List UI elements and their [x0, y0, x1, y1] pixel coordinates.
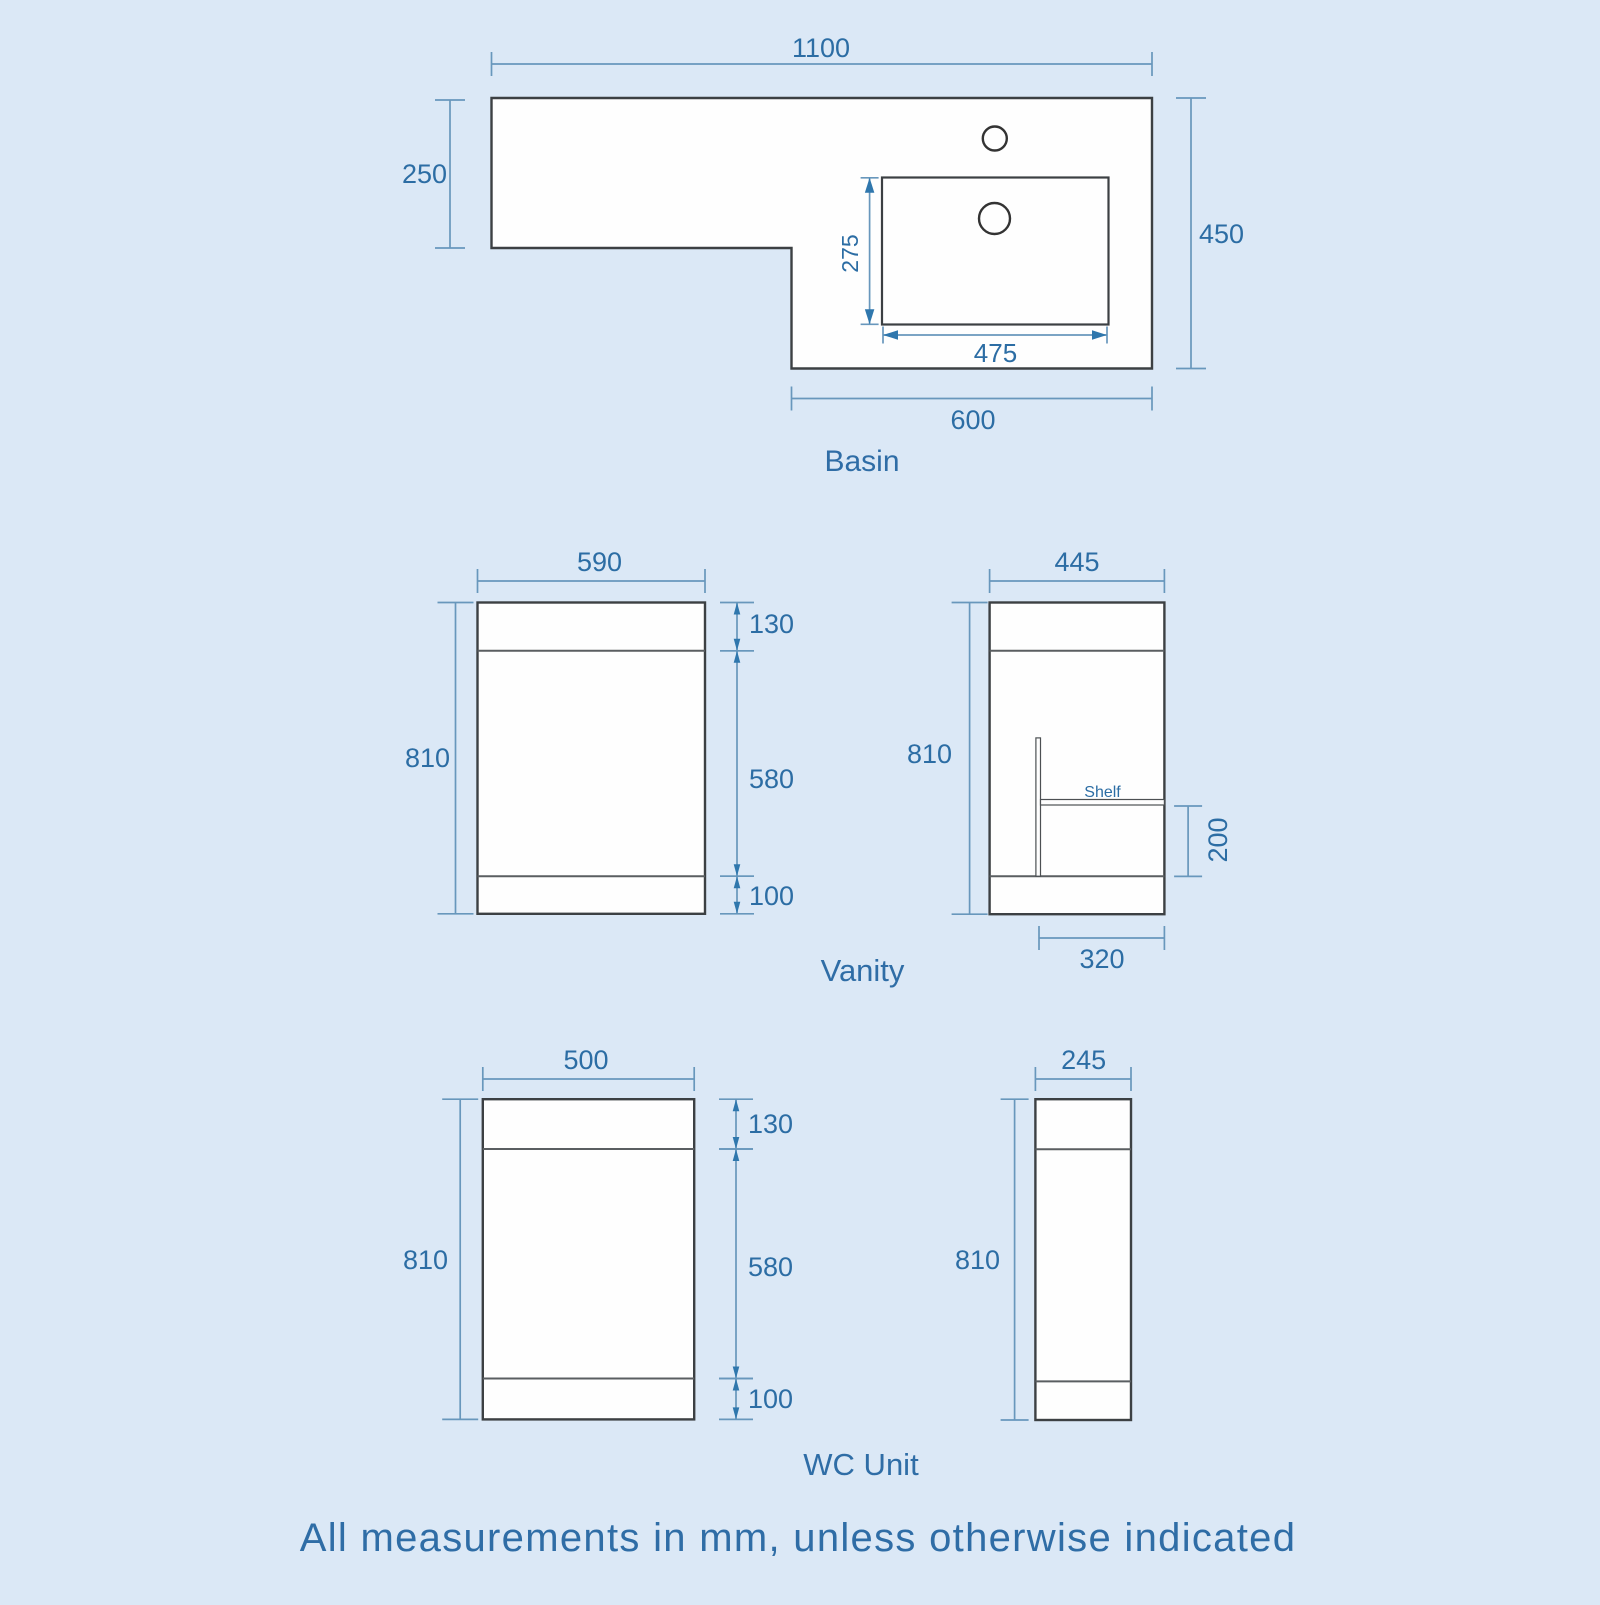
svg-text:450: 450 — [1199, 219, 1244, 249]
svg-text:590: 590 — [577, 547, 622, 577]
svg-text:1100: 1100 — [792, 33, 850, 63]
svg-text:580: 580 — [749, 764, 794, 794]
svg-text:130: 130 — [749, 609, 794, 639]
svg-text:245: 245 — [1061, 1045, 1106, 1075]
svg-text:810: 810 — [907, 739, 952, 769]
svg-text:600: 600 — [950, 405, 995, 435]
svg-text:WC Unit: WC Unit — [803, 1447, 919, 1482]
svg-text:810: 810 — [405, 743, 450, 773]
svg-text:500: 500 — [563, 1045, 608, 1075]
svg-text:275: 275 — [837, 234, 863, 272]
svg-text:Shelf: Shelf — [1084, 784, 1121, 801]
svg-text:580: 580 — [748, 1252, 793, 1282]
svg-text:200: 200 — [1203, 817, 1233, 862]
svg-text:445: 445 — [1054, 547, 1099, 577]
svg-text:All measurements in mm, unless: All measurements in mm, unless otherwise… — [300, 1516, 1297, 1560]
svg-text:100: 100 — [749, 881, 794, 911]
svg-text:320: 320 — [1079, 944, 1124, 974]
svg-text:810: 810 — [403, 1245, 448, 1275]
svg-text:810: 810 — [955, 1245, 1000, 1275]
svg-text:Basin: Basin — [824, 445, 899, 478]
svg-text:100: 100 — [748, 1384, 793, 1414]
svg-text:Vanity: Vanity — [821, 953, 905, 988]
svg-text:475: 475 — [974, 338, 1017, 368]
svg-text:250: 250 — [402, 159, 447, 189]
svg-text:130: 130 — [748, 1109, 793, 1139]
